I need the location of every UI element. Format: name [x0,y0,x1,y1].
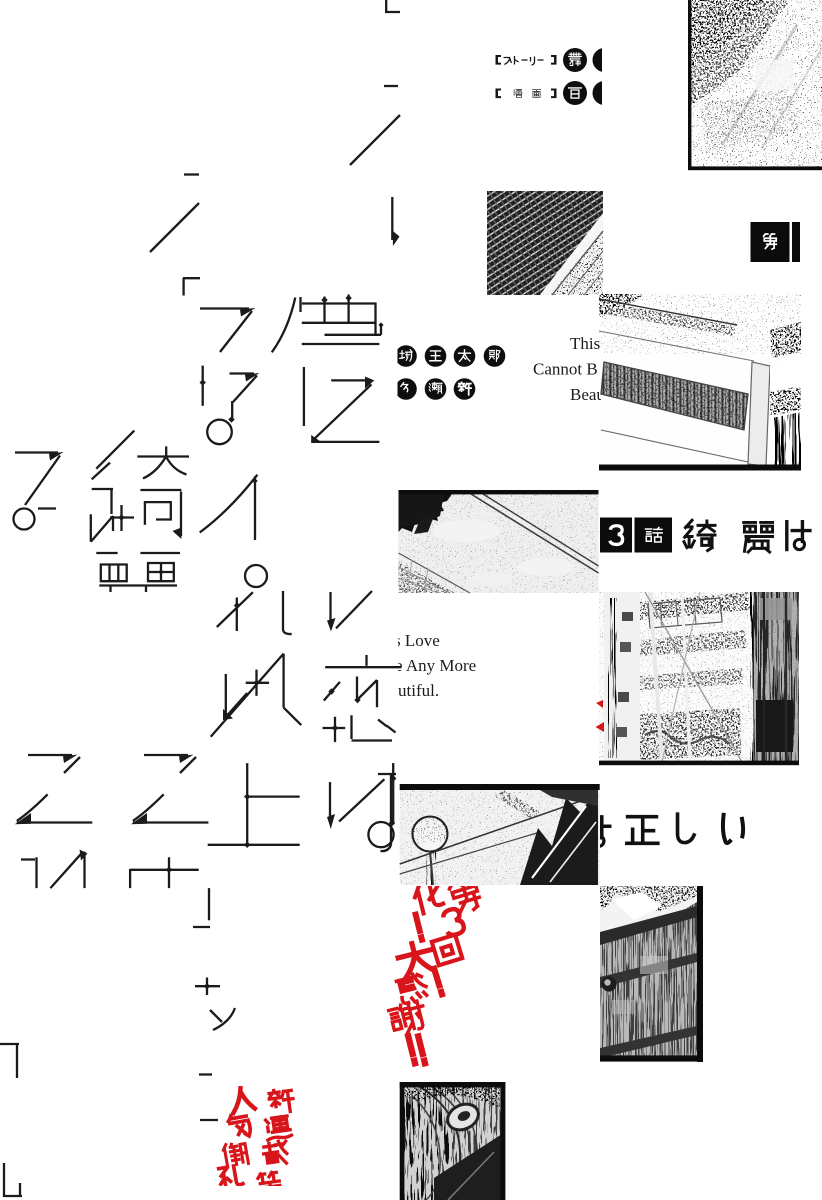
svg-text:e Any More: e Any More [395,656,476,675]
svg-text:This: This [570,334,600,353]
svg-text:Beau: Beau [570,385,605,404]
svg-text:Cannot B: Cannot B [533,360,598,379]
svg-text:utiful.: utiful. [398,681,439,700]
svg-text:s Love: s Love [394,631,440,650]
